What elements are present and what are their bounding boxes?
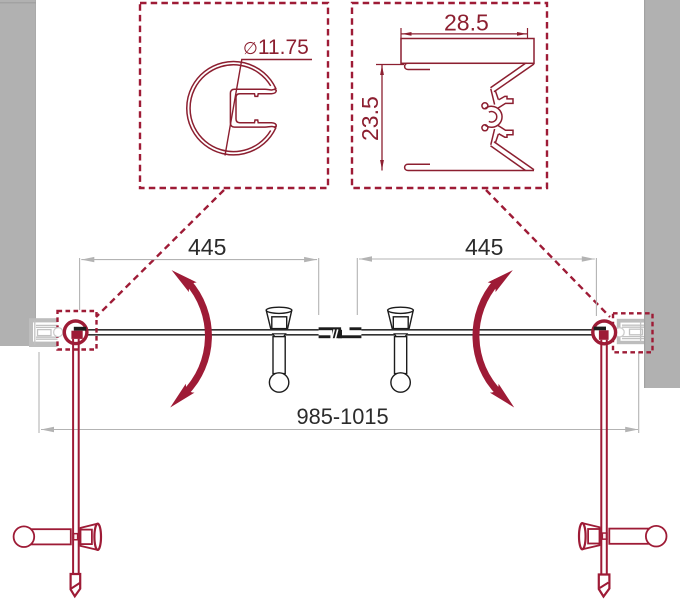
- svg-text:28.5: 28.5: [444, 10, 489, 36]
- svg-text:985-1015: 985-1015: [297, 404, 389, 429]
- svg-text:445: 445: [465, 234, 503, 260]
- svg-text:∅11.75: ∅11.75: [243, 36, 309, 59]
- svg-text:23.5: 23.5: [357, 96, 383, 141]
- svg-text:445: 445: [188, 234, 226, 260]
